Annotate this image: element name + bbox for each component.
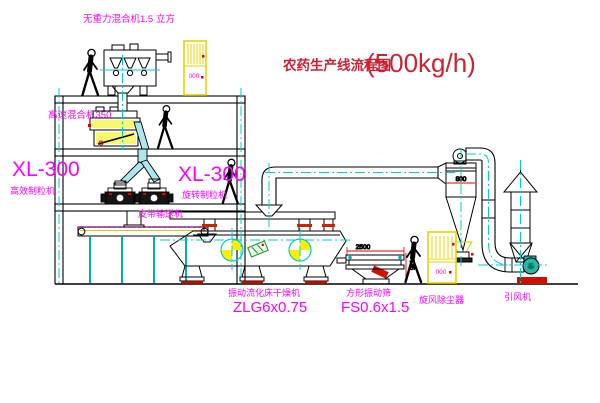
label-high-speed-mixer: 高速混合机350 <box>48 109 111 121</box>
label-fan: 引风机 <box>504 291 531 302</box>
person-figure <box>158 106 172 148</box>
process-flow-diagram: 000 <box>0 0 600 403</box>
label-cyclone: 旋风除尘器 <box>419 294 464 305</box>
control-cabinet-top: 000 <box>184 41 206 95</box>
label-granulator-left-name: 高效制粒机 <box>10 185 55 196</box>
granulator-right <box>135 183 173 204</box>
belt-conveyor <box>78 227 208 283</box>
diagram-canvas: 000 <box>0 0 600 403</box>
fluid-bed-dryer <box>170 212 346 284</box>
label-granulator-right-model: XL-300 <box>178 163 246 186</box>
granulator-left <box>101 183 139 204</box>
label-dryer-name: 振动流化床干燥机 <box>228 287 300 298</box>
cabinet-top-display: 000 <box>189 73 200 80</box>
vibrating-screen: 2500 745 <box>337 244 414 284</box>
label-screen-name: 方形振动筛 <box>346 287 391 298</box>
cabinet-bottom-display: 000 <box>436 269 447 276</box>
label-granulator-left-model: XL-300 <box>12 158 80 181</box>
person-figure <box>83 49 99 95</box>
title-capacity: (500kg/h) <box>366 48 476 78</box>
label-dryer-model: ZLG6x0.75 <box>233 299 307 316</box>
gravity-free-mixer <box>100 44 171 111</box>
person-figure <box>406 236 422 282</box>
label-screen-model: FS0.6x1.5 <box>341 299 409 316</box>
screen-length-dimension: 2500 <box>356 244 371 251</box>
exhaust-duct <box>256 167 438 216</box>
granulator-feed-chute <box>115 122 160 185</box>
label-belt-conveyor: 皮带输送机 <box>138 208 183 219</box>
brand-plate <box>248 241 268 257</box>
label-gravity-mixer: 无重力混合机1.5 立方 <box>83 13 175 25</box>
control-cabinet-bottom: 000 <box>428 232 456 283</box>
label-granulator-right-name: 旋转制粒机 <box>182 189 227 200</box>
